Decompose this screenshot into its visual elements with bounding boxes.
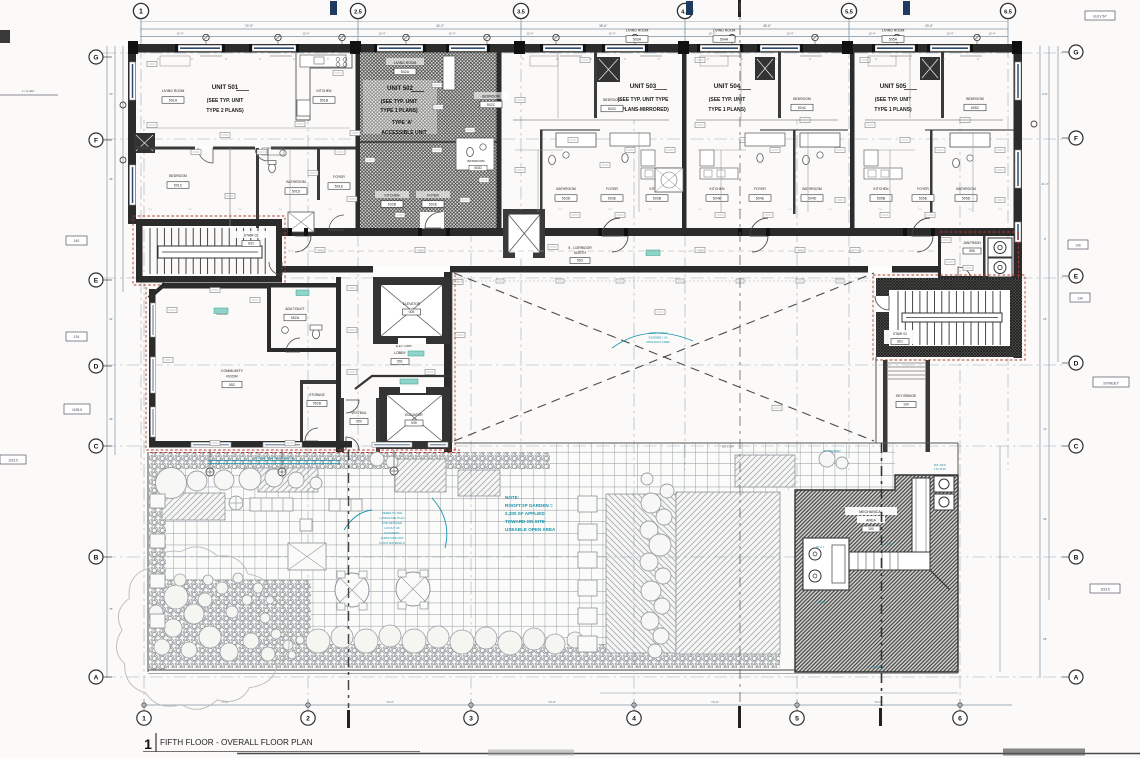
svg-text:551: 551 — [397, 360, 403, 364]
svg-text:TYPE 1 PLANS): TYPE 1 PLANS) — [874, 107, 912, 113]
svg-text:ACCESSIBLE UNIT: ACCESSIBLE UNIT — [381, 130, 426, 136]
svg-text:12'-4": 12'-4" — [302, 32, 309, 36]
svg-text:NOTE:: NOTE: — [505, 495, 520, 500]
svg-text:134: 134 — [74, 335, 80, 339]
svg-text:A: A — [94, 675, 99, 682]
svg-text:74'-0": 74'-0" — [711, 700, 719, 704]
svg-text:D: D — [1074, 361, 1079, 368]
svg-text:552A: 552A — [291, 316, 300, 320]
svg-text:502E: 502E — [429, 202, 438, 206]
svg-text:505B: 505B — [877, 196, 886, 200]
svg-text:1: 1 — [142, 716, 146, 723]
svg-text:502A: 502A — [401, 70, 410, 74]
svg-text:38'-6": 38'-6" — [763, 24, 771, 28]
svg-text:W.B. AFF'D: W.B. AFF'D — [934, 464, 947, 467]
svg-text:005: 005 — [409, 310, 415, 314]
svg-text:34'-2": 34'-2" — [436, 24, 444, 28]
svg-text:556: 556 — [969, 249, 975, 253]
svg-text:FOYER: FOYER — [606, 187, 618, 191]
svg-text:LANDSCAPE PLAN: LANDSCAPE PLAN — [379, 516, 404, 520]
svg-text:B: B — [94, 555, 99, 562]
svg-text:(SEE TYP. UNIT: (SEE TYP. UNIT — [207, 98, 244, 104]
svg-text:12'-4": 12'-4" — [868, 32, 875, 36]
svg-text:36': 36' — [1043, 517, 1047, 521]
svg-text:TYPE 'A': TYPE 'A' — [392, 120, 412, 126]
svg-text:F: F — [94, 138, 98, 145]
svg-text:FOR DETAILED: FOR DETAILED — [382, 521, 402, 525]
svg-text:LOBBY: LOBBY — [394, 351, 407, 355]
svg-text:550: 550 — [356, 420, 362, 424]
svg-text:28': 28' — [109, 177, 113, 181]
svg-text:12'-4": 12'-4" — [988, 32, 995, 36]
svg-text:ELEV. LOBBY: ELEV. LOBBY — [396, 344, 413, 348]
svg-text:STREET: STREET — [1103, 381, 1119, 386]
svg-text:1193.5: 1193.5 — [1100, 588, 1110, 592]
svg-text:10': 10' — [109, 92, 113, 96]
svg-text:501C: 501C — [174, 183, 183, 187]
svg-text:503C: 503C — [608, 107, 617, 111]
svg-text:5 - CORRIDOR: 5 - CORRIDOR — [568, 246, 592, 250]
svg-text:18': 18' — [109, 417, 113, 421]
svg-text:KITCHEN: KITCHEN — [385, 194, 400, 198]
svg-text:E: E — [94, 278, 99, 285]
svg-text:E: E — [1074, 274, 1079, 281]
svg-text:38'-6": 38'-6" — [599, 24, 607, 28]
svg-text:150: 150 — [868, 527, 874, 531]
svg-text:28': 28' — [1043, 637, 1047, 641]
svg-text:C: C — [1074, 444, 1079, 451]
svg-text:MECHANICAL: MECHANICAL — [859, 510, 883, 514]
svg-text:KITCHEN: KITCHEN — [710, 187, 725, 191]
svg-text:501B: 501B — [320, 98, 329, 102]
svg-text:41'-3": 41'-3" — [1041, 182, 1048, 186]
svg-text:503E: 503E — [608, 196, 617, 200]
svg-text:MANUFACTURER: MANUFACTURER — [646, 340, 669, 344]
svg-text:D: D — [94, 364, 99, 371]
svg-text:505D: 505D — [962, 196, 971, 200]
svg-text:BATHROOM: BATHROOM — [286, 180, 306, 184]
svg-text:505A: 505A — [889, 37, 898, 41]
svg-text:ADA TOILET: ADA TOILET — [285, 307, 304, 311]
svg-text:FOYER: FOYER — [333, 175, 345, 179]
svg-text:502B: 502B — [388, 202, 397, 206]
svg-text:AREA: AREA — [866, 519, 876, 523]
svg-text:STORAGE: STORAGE — [309, 393, 325, 397]
svg-text:RTU-1: RTU-1 — [816, 545, 824, 549]
svg-text:NORTH: NORTH — [574, 251, 587, 255]
svg-text:STAIR 02: STAIR 02 — [244, 234, 259, 238]
svg-text:EQUIP: EQUIP — [818, 601, 826, 604]
svg-text:ELEVATOR: ELEVATOR — [403, 302, 421, 306]
svg-text:ROOFTOP GARDEN =: ROOFTOP GARDEN = — [505, 503, 553, 508]
svg-text:74'-0": 74'-0" — [874, 700, 882, 704]
svg-text:PLANT MATERIALS: PLANT MATERIALS — [379, 541, 405, 545]
svg-text:S02: S02 — [248, 242, 254, 246]
svg-text:140: 140 — [74, 239, 80, 243]
svg-text:29'-6": 29'-6" — [925, 24, 933, 28]
svg-text:LAYOUT OF: LAYOUT OF — [384, 526, 400, 530]
svg-text:3: 3 — [469, 716, 473, 723]
svg-text:REFER TO THE: REFER TO THE — [382, 511, 402, 515]
svg-text:ELEVATOR: ELEVATOR — [405, 413, 423, 417]
svg-text:134: 134 — [1077, 297, 1083, 301]
svg-text:12'-4": 12'-4" — [448, 32, 455, 36]
svg-text:501E: 501E — [335, 184, 344, 188]
svg-text:2.5: 2.5 — [354, 10, 362, 16]
svg-text:502D: 502D — [474, 166, 482, 170]
svg-text:LIVING ROOM: LIVING ROOM — [882, 29, 905, 33]
svg-text:553: 553 — [577, 259, 583, 263]
svg-text:COMMUNITY: COMMUNITY — [221, 369, 244, 373]
svg-text:24': 24' — [1043, 317, 1047, 321]
svg-text:504C: 504C — [798, 106, 807, 110]
svg-text:12'-4": 12'-4" — [786, 32, 793, 36]
svg-text:5: 5 — [795, 716, 799, 723]
svg-text:1 / A-402: 1 / A-402 — [22, 89, 34, 93]
svg-text:24': 24' — [109, 317, 113, 321]
svg-text:74'-0": 74'-0" — [548, 700, 556, 704]
svg-text:2: 2 — [306, 716, 310, 723]
svg-text:KITCHEN: KITCHEN — [874, 187, 889, 191]
svg-text:UNIT 503: UNIT 503 — [630, 83, 657, 90]
svg-text:552: 552 — [229, 383, 235, 387]
svg-text:LIVING ROOM: LIVING ROOM — [394, 61, 417, 65]
svg-text:505C: 505C — [971, 106, 980, 110]
svg-text:BEDROOM: BEDROOM — [966, 97, 984, 101]
svg-text:LIVING ROOM: LIVING ROOM — [162, 89, 185, 93]
svg-text:C: C — [94, 444, 99, 451]
svg-text:100: 100 — [903, 403, 909, 407]
svg-text:BEDROOM: BEDROOM — [793, 97, 811, 101]
svg-text:(SEE TYP. UNIT: (SEE TYP. UNIT — [381, 99, 418, 105]
svg-text:BEDROOM: BEDROOM — [482, 95, 500, 99]
svg-text:ROOM: ROOM — [226, 375, 237, 379]
svg-text:503D: 503D — [562, 196, 571, 200]
svg-text:ASSEMBLY W/: ASSEMBLY W/ — [648, 336, 667, 340]
svg-text:FOYER: FOYER — [754, 187, 766, 191]
svg-text:4 SU PLPF: 4 SU PLPF — [934, 468, 946, 471]
svg-text:1193.5: 1193.5 — [8, 459, 18, 463]
svg-text:501D: 501D — [292, 189, 301, 193]
svg-text:75': 75' — [109, 607, 113, 611]
svg-text:UNIT 505: UNIT 505 — [880, 83, 907, 90]
svg-text:505E: 505E — [919, 196, 928, 200]
svg-text:502C: 502C — [487, 103, 496, 107]
svg-text:A: A — [1074, 675, 1079, 682]
svg-text:3.5: 3.5 — [517, 10, 525, 16]
svg-text:12'-4": 12'-4" — [608, 32, 615, 36]
svg-text:DUCT: DUCT — [887, 543, 894, 546]
svg-text:504E: 504E — [756, 196, 765, 200]
svg-text:S01: S01 — [897, 340, 903, 344]
svg-text:005: 005 — [411, 421, 417, 425]
svg-text:UNIT 502: UNIT 502 — [387, 86, 413, 92]
svg-text:PLANTERS,: PLANTERS, — [384, 531, 400, 535]
svg-text:1198.5: 1198.5 — [72, 408, 82, 412]
svg-text:TOWARD ON SITE: TOWARD ON SITE — [505, 519, 545, 524]
svg-text:STAIR 01: STAIR 01 — [893, 332, 907, 336]
svg-text:KITCHEN: KITCHEN — [317, 89, 332, 93]
svg-text:504A: 504A — [720, 37, 729, 41]
svg-text:FOYER: FOYER — [427, 194, 439, 198]
svg-text:504B: 504B — [713, 196, 722, 200]
svg-text:JAN/TRASH: JAN/TRASH — [963, 241, 981, 245]
svg-text:12'-4": 12'-4" — [176, 32, 183, 36]
svg-text:42" PARAPET: 42" PARAPET — [823, 449, 841, 453]
svg-text:2,200 SF APPLIED: 2,200 SF APPLIED — [505, 511, 545, 516]
svg-text:6: 6 — [958, 716, 962, 723]
svg-text:ELEV 54': ELEV 54' — [1093, 15, 1107, 19]
svg-text:(SEE TYP. UNIT TYPE: (SEE TYP. UNIT TYPE — [617, 97, 669, 103]
svg-text:140: 140 — [1075, 244, 1081, 248]
svg-text:504D: 504D — [808, 196, 817, 200]
svg-text:12'-4": 12'-4" — [378, 32, 385, 36]
svg-text:FIFTH FLOOR - OVERALL FLOOR PL: FIFTH FLOOR - OVERALL FLOOR PLAN — [160, 738, 313, 747]
svg-text:G: G — [1073, 50, 1078, 57]
svg-text:501A: 501A — [169, 98, 178, 102]
svg-text:G: G — [93, 55, 98, 62]
svg-text:F: F — [1074, 136, 1078, 143]
svg-text:PLANTING AREA PER LANDSCAPE: PLANTING AREA PER LANDSCAPE — [254, 457, 294, 460]
svg-text:BATHROOM: BATHROOM — [467, 159, 485, 163]
svg-text:6.5: 6.5 — [1004, 10, 1012, 16]
svg-text:SKY BRIDGE: SKY BRIDGE — [896, 394, 917, 398]
svg-text:BATHROOM: BATHROOM — [802, 187, 822, 191]
svg-text:9'-8": 9'-8" — [1042, 92, 1048, 96]
svg-text:552B: 552B — [313, 402, 322, 406]
svg-text:5.5: 5.5 — [845, 10, 853, 16]
svg-text:TYPE 1 PLANS): TYPE 1 PLANS) — [380, 108, 418, 114]
svg-text:B: B — [1074, 555, 1079, 562]
svg-text:4: 4 — [632, 716, 636, 723]
svg-text:1: 1 — [139, 9, 143, 16]
svg-text:BATHROOM: BATHROOM — [556, 187, 576, 191]
svg-text:UNIT 504: UNIT 504 — [714, 83, 741, 90]
svg-text:LIVING ROOM: LIVING ROOM — [626, 29, 649, 33]
svg-text:503B: 503B — [653, 196, 662, 200]
svg-text:74'-9": 74'-9" — [245, 24, 253, 28]
svg-text:USEABLE OPEN AREA: USEABLE OPEN AREA — [505, 527, 556, 532]
svg-text:BEDROOM: BEDROOM — [169, 174, 187, 178]
svg-text:12'-4": 12'-4" — [946, 32, 953, 36]
svg-text:12'-4": 12'-4" — [526, 32, 533, 36]
svg-text:74'-0": 74'-0" — [386, 700, 394, 704]
svg-text:NO STOP: NO STOP — [722, 445, 734, 449]
svg-text:LIVING ROOM: LIVING ROOM — [713, 29, 736, 33]
svg-text:TYPE 2 PLANS): TYPE 2 PLANS) — [206, 108, 244, 114]
svg-text:VESTIBUL: VESTIBUL — [351, 411, 367, 415]
svg-text:11': 11' — [1043, 427, 1047, 431]
svg-text:BEDROOM: BEDROOM — [603, 98, 621, 102]
svg-text:1 PLANS-MIRRORED): 1 PLANS-MIRRORED) — [617, 107, 669, 113]
svg-text:1: 1 — [144, 736, 152, 752]
svg-text:(SEE TYP. UNIT: (SEE TYP. UNIT — [875, 97, 912, 103]
svg-text:FURNITURE AND: FURNITURE AND — [381, 536, 404, 540]
svg-text:FOYER: FOYER — [917, 187, 929, 191]
svg-text:503A: 503A — [633, 37, 642, 41]
svg-text:UNIT 501: UNIT 501 — [212, 84, 239, 91]
